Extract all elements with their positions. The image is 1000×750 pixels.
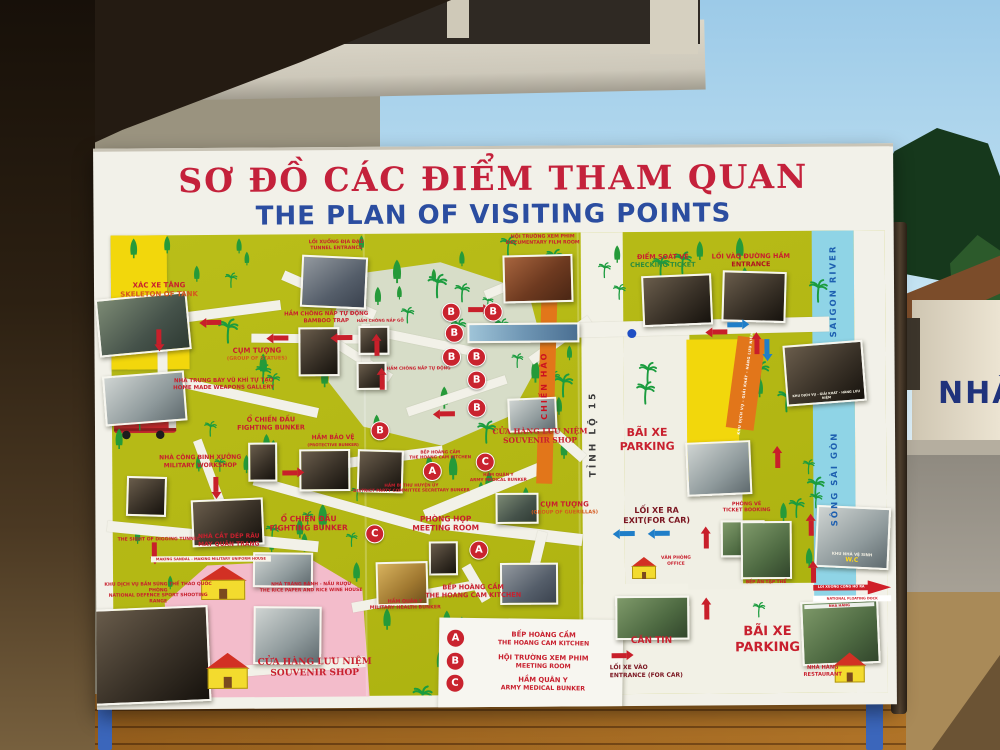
map-label-workshop: NHÀ CÔNG BINH XƯỞNGMILITARY WORKSHOP bbox=[148, 454, 252, 470]
legend-box: ABẾP HOÀNG CẦMTHE HOANG CAM KITCHENBHỘI … bbox=[438, 617, 623, 709]
point-marker-b: B bbox=[442, 348, 461, 367]
map-label-fighting-bunker-2: Ổ CHIẾN ĐẤUFIGHTING BUNKER bbox=[261, 514, 357, 533]
map-label-medical-2: HẦM QUÂN YMILITARY HEALTH BUNKER bbox=[365, 599, 445, 612]
direction-arrow bbox=[754, 339, 759, 354]
palm-tree-icon bbox=[346, 533, 357, 546]
legend-row-a: ABẾP HOÀNG CẦMTHE HOANG CAM KITCHEN bbox=[447, 630, 615, 650]
map-label-tank: XÁC XE TĂNGSKELETON OF TANK bbox=[103, 281, 215, 299]
map-photo-mess-photo bbox=[741, 521, 792, 579]
point-marker-b: B bbox=[484, 302, 503, 321]
map-label-office: VĂN PHÒNGOFFICE bbox=[651, 556, 701, 567]
map-photo-wc-photo: KHU NHÀ VỆ SINHW.C bbox=[814, 505, 891, 570]
map-photo-pano-strip bbox=[467, 322, 579, 343]
palm-tree-icon bbox=[790, 499, 804, 517]
sign-title-vietnamese: SƠ ĐỒ CÁC ĐIỂM THAM QUAN bbox=[105, 156, 881, 200]
sign-title-english: THE PLAN OF VISITING POINTS bbox=[105, 197, 881, 232]
map-label-secretary-bunker: HẦM BÍ THƯ HUYỆN ỦYDISTRICT PARTY COMMIT… bbox=[348, 482, 474, 493]
sign-title-block: SƠ ĐỒ CÁC ĐIỂM THAM QUAN THE PLAN OF VIS… bbox=[105, 148, 882, 233]
ceiling-column bbox=[447, 0, 469, 38]
map-label-mess-kitchen: BẾP ĂN TẬP THỂ bbox=[733, 580, 799, 586]
map-photo-gate-photo-1 bbox=[641, 273, 713, 327]
direction-arrow bbox=[282, 470, 297, 475]
map-photo-canteen-photo bbox=[615, 596, 689, 641]
point-marker-a: A bbox=[423, 462, 442, 481]
palm-tree-icon bbox=[205, 422, 216, 436]
map-photo-dark-photo-1 bbox=[126, 476, 167, 517]
map-photo-gate-photo-2 bbox=[721, 270, 786, 323]
map-label-ticket-booking: PHÒNG VÉTICKET BOOKING bbox=[709, 501, 785, 514]
floating-dock-arrow: LỐI XUỐNG CỔNG HỒ RANATIONAL FLOATING DO… bbox=[813, 580, 891, 602]
direction-arrow bbox=[612, 653, 627, 658]
direction-arrow bbox=[152, 542, 157, 557]
map-label-entrance-car: LỐI XE VÀOENTRANCE (FOR CAR) bbox=[610, 663, 716, 679]
map-label-canteen: CĂN TIN bbox=[619, 636, 683, 648]
map-photo-tank-photo bbox=[95, 291, 192, 357]
photo-scene: NHÀ SƠ ĐỒ CÁC ĐIỂM THAM QUAN THE PLAN OF… bbox=[0, 0, 1000, 750]
map-label-kitchen-2: BẾP HOÀNG CẦMTHE HOANG CAM KITCHEN bbox=[398, 449, 482, 460]
map-label-medical-1: HẦM QUÂN YARMY MEDICAL BUNKER bbox=[462, 472, 534, 483]
map-label-guard-bunker: HẦM BẢO VỆ(PROTECTIVE BUNKER) bbox=[295, 434, 371, 447]
palm-tree-icon bbox=[226, 273, 237, 287]
map-photo-dark-photo-2 bbox=[429, 541, 458, 575]
map-label-parking-1: BÃI XEPARKING bbox=[612, 426, 682, 454]
point-marker-b: B bbox=[467, 348, 486, 367]
map-label-tunnel-gate: LỐI VÀO ĐƯỜNG HẦMENTRANCE bbox=[699, 252, 803, 269]
direction-arrow bbox=[380, 375, 385, 390]
map-label-sandal-banner: MAKING SANDAL - MAKING MILITARY UNIFORM … bbox=[151, 556, 271, 563]
tree-icon bbox=[353, 562, 360, 582]
house-icon bbox=[204, 653, 252, 689]
tree-icon bbox=[459, 251, 464, 266]
map-label-route-15: TỈNH LỘ 15 bbox=[588, 384, 600, 484]
map-photo-tunnel-group-photo bbox=[300, 255, 368, 310]
point-marker-b: B bbox=[370, 421, 389, 440]
map-panel: ABẾP HOÀNG CẦMTHE HOANG CAM KITCHENBHỘI … bbox=[111, 230, 888, 697]
map-label-kitchen-1: BẾP HOÀNG CẦMTHE HOANG CAM KITCHEN bbox=[415, 583, 531, 600]
point-marker-b: B bbox=[442, 303, 461, 322]
direction-arrow bbox=[468, 307, 483, 312]
tree-icon bbox=[194, 266, 200, 282]
map-label-trap-2: HẦM CHÔNG NẮP GỖ bbox=[351, 318, 409, 323]
map-label-chien-hao: CHIẾN HÀO bbox=[539, 331, 550, 441]
map-dot bbox=[627, 329, 636, 338]
direction-arrow bbox=[156, 329, 161, 344]
map-label-statues: CỤM TƯỢNG(GROUP OF STATUES) bbox=[209, 346, 304, 362]
direction-arrow bbox=[337, 335, 352, 340]
map-photo-jeep-photo bbox=[93, 605, 211, 706]
tree-icon bbox=[236, 238, 241, 253]
direction-arrow bbox=[712, 329, 727, 334]
direction-arrow bbox=[206, 320, 221, 325]
map-label-meeting-room: PHÒNG HỌPMEETING ROOM bbox=[405, 514, 487, 533]
map-label-parking-2: BÃI XEPARKING bbox=[719, 624, 815, 657]
map-label-fighting-bunker-1: Ổ CHIẾN ĐẤUFIGHTING BUNKER bbox=[230, 415, 312, 432]
direction-arrow bbox=[213, 477, 218, 492]
map-label-souvenir-1: CỬA HÀNG LƯU NIỆMSOUVENIR SHOP bbox=[252, 657, 378, 680]
background-building-sign: NHÀ bbox=[938, 376, 1000, 411]
point-marker-b: B bbox=[467, 371, 486, 390]
point-marker-c: C bbox=[476, 453, 495, 472]
palm-tree-icon bbox=[219, 319, 237, 342]
legend-row-c: CHẦM QUÂN YARMY MEDICAL BUNKER bbox=[446, 675, 614, 695]
point-marker-c: C bbox=[365, 524, 384, 543]
direction-arrow bbox=[704, 605, 709, 620]
direction-arrow bbox=[764, 339, 769, 354]
direction-arrow bbox=[704, 534, 709, 549]
map-label-saigon-river: SAIGON RIVER bbox=[828, 236, 839, 346]
map-label-sandal-house: NHÀ CẮT DÉP RÂUMAY QUÂN TRANG bbox=[187, 533, 271, 549]
map-photo-office-gate-photo bbox=[685, 440, 752, 497]
map-label-song-sai-gon: SÔNG SÀI GÒN bbox=[830, 424, 841, 534]
legend-row-b: BHỘI TRƯỜNG XEM PHIMMEETING ROOM bbox=[447, 652, 615, 672]
direction-arrow bbox=[620, 531, 635, 536]
point-marker-b: B bbox=[467, 399, 486, 418]
map-photo-corridor-photo: KHU DỊCH VỤ - GIẢI KHÁT - HÀNG LƯU NIỆM bbox=[782, 340, 866, 407]
map-label-film-room: HỘI TRƯỜNG XEM PHIMDOCUMENTARY FILM ROOM bbox=[493, 234, 593, 247]
map-label-rice-house: NHÀ TRÁNG BÁNH - NẤU RƯỢUTHE RICE PAPER … bbox=[259, 582, 363, 594]
point-marker-a: A bbox=[469, 541, 488, 560]
map-label-guerrillas: CỤM TƯỢNG(GROUP OF GUERILLAS) bbox=[519, 500, 611, 516]
map-label-shooting-range: KHU DỊCH VỤ BẮN SÚNG THỂ THAO QUỐC PHÒNG… bbox=[99, 582, 217, 606]
direction-arrow bbox=[655, 531, 670, 536]
map-label-trap-3: HẦM CHÔNG NẮP TỰ ĐỘNG bbox=[380, 365, 458, 371]
direction-arrow bbox=[440, 411, 455, 416]
direction-arrow bbox=[775, 453, 780, 468]
map-photo-shop-photo-2 bbox=[253, 606, 322, 665]
tree-icon bbox=[244, 252, 249, 266]
palm-tree-icon bbox=[555, 374, 573, 396]
map-photo-film-room-photo bbox=[502, 254, 573, 304]
map-label-weapons-gallery: NHÀ TRƯNG BÀY VŨ KHÍ TỰ TẠOHOME MADE WEA… bbox=[164, 377, 284, 392]
tree-icon bbox=[567, 345, 572, 360]
map-photo-bunker-photo-1 bbox=[248, 443, 277, 482]
left-wall bbox=[0, 0, 95, 750]
point-marker-b: B bbox=[445, 324, 464, 343]
palm-tree-icon bbox=[414, 686, 432, 697]
map-label-tunnel-entry: LỐI XUỐNG ĐỊA ĐẠOTUNNEL ENTRANCE bbox=[289, 240, 384, 253]
map-label-exit-car: LỐI XE RAEXIT(FOR CAR) bbox=[605, 506, 709, 527]
direction-arrow bbox=[809, 521, 814, 536]
direction-arrow bbox=[273, 335, 288, 340]
ceiling-column bbox=[650, 0, 698, 54]
map-signboard: SƠ ĐỒ CÁC ĐIỂM THAM QUAN THE PLAN OF VIS… bbox=[93, 143, 897, 710]
direction-arrow bbox=[727, 322, 742, 327]
map-label-restaurant: NHÀ HÀNGRESTAURANT bbox=[794, 665, 852, 678]
map-photo-guard-photo bbox=[299, 449, 350, 491]
direction-arrow bbox=[374, 341, 379, 356]
map-label-ticket-check: ĐIỂM SOÁT VÉCHECKING TICKET bbox=[619, 253, 707, 270]
